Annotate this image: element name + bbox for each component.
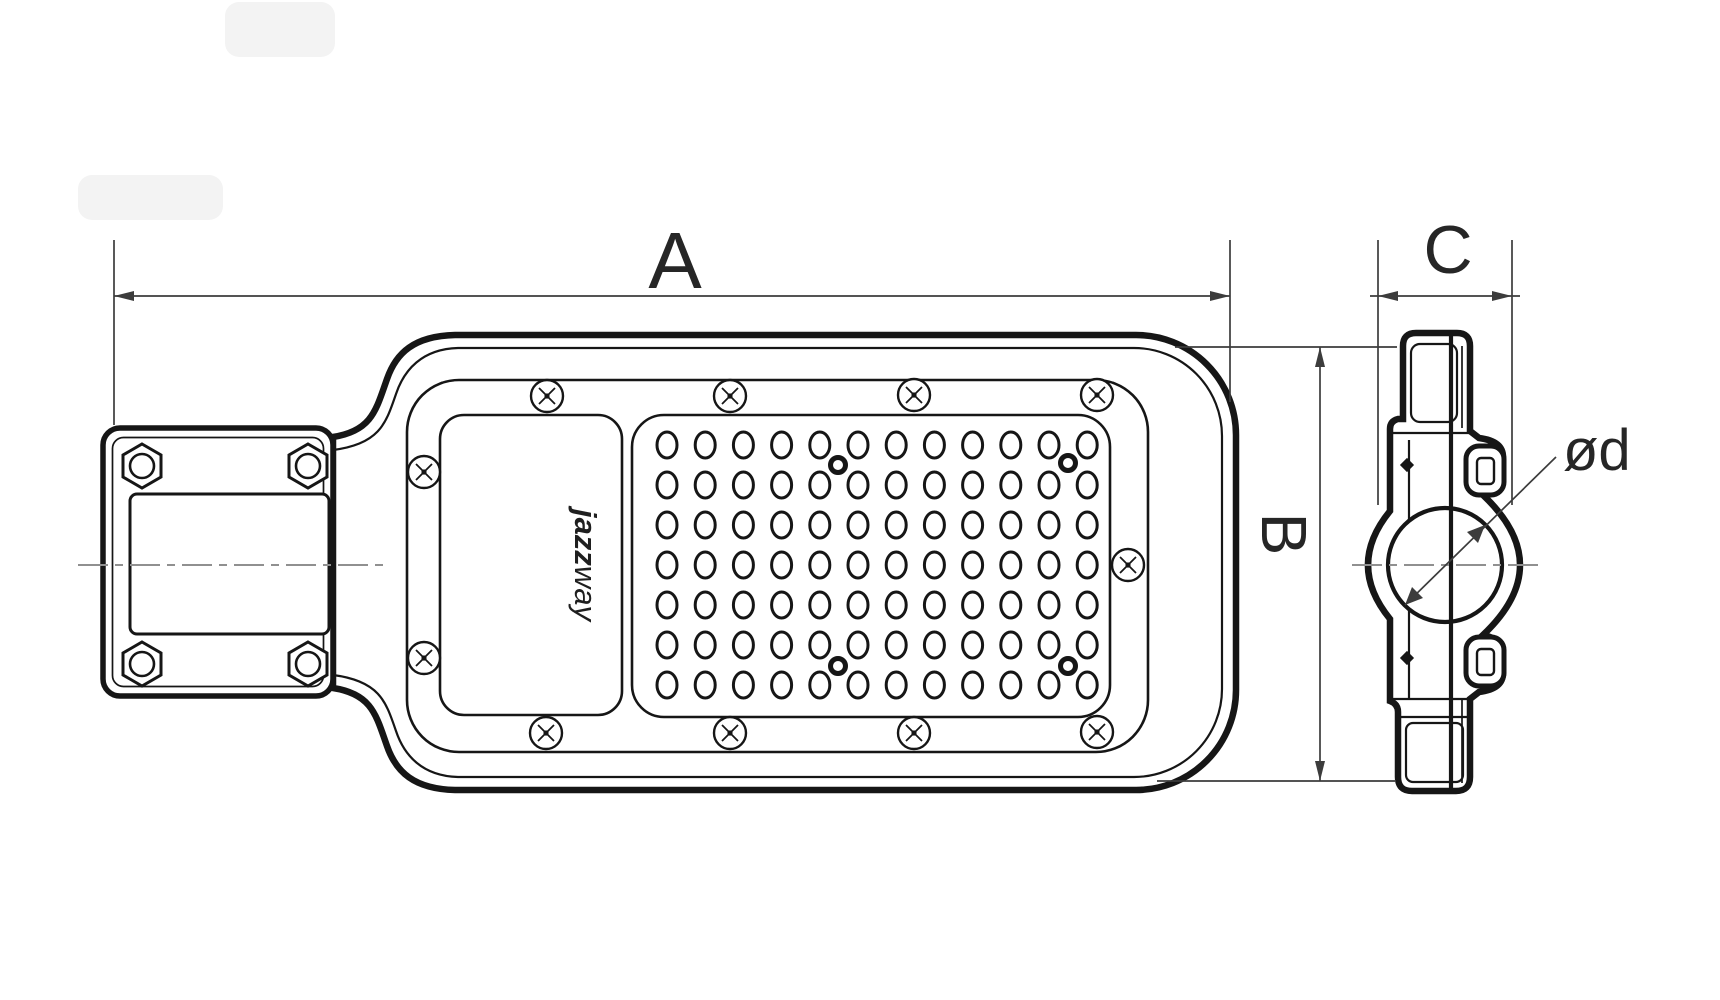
led-lens (1001, 592, 1021, 618)
led-lens (1001, 672, 1021, 698)
clamp-screw-bottom (1466, 637, 1504, 686)
led-lens (963, 432, 983, 458)
led-lens (657, 552, 677, 578)
led-lens (848, 632, 868, 658)
led-lens (772, 632, 792, 658)
led-lens (924, 632, 944, 658)
led-lens (1039, 432, 1059, 458)
hex-bolt-hole (130, 652, 154, 676)
led-lens (733, 432, 753, 458)
screw-center (421, 469, 426, 474)
led-lens (695, 512, 715, 538)
led-lens (733, 592, 753, 618)
led-lens (1077, 472, 1097, 498)
screw-center (727, 730, 732, 735)
led-lens (1001, 552, 1021, 578)
led-lens (1039, 592, 1059, 618)
led-lens (1001, 432, 1021, 458)
led-lens (695, 432, 715, 458)
led-lens (924, 472, 944, 498)
led-lens (772, 472, 792, 498)
led-lens (772, 512, 792, 538)
hex-bolt-hole (130, 454, 154, 478)
led-lens (886, 672, 906, 698)
screw-center (544, 393, 549, 398)
led-lens (1077, 552, 1097, 578)
main-view: jazzway (78, 335, 1236, 790)
led-lens (657, 672, 677, 698)
arrowhead-left (1378, 291, 1398, 301)
screw-center (543, 730, 548, 735)
screw-center (727, 393, 732, 398)
screw-center (1094, 729, 1099, 734)
led-lens (695, 552, 715, 578)
led-lens (810, 592, 830, 618)
led-lens (772, 672, 792, 698)
screw-center (911, 392, 916, 397)
led-lens (924, 592, 944, 618)
led-lens (963, 472, 983, 498)
arrowhead-right (1210, 291, 1230, 301)
hex-bolt-hole (296, 652, 320, 676)
clamp-screw-top (1466, 446, 1504, 495)
arrowhead-left (114, 291, 134, 301)
led-lens (886, 512, 906, 538)
led-lens (848, 592, 868, 618)
led-lens (848, 512, 868, 538)
led-lens (733, 472, 753, 498)
led-lens (1039, 552, 1059, 578)
led-lens (886, 632, 906, 658)
brand-logo: jazzway (568, 505, 603, 623)
led-lens (695, 592, 715, 618)
led-lens (963, 592, 983, 618)
arrowhead-right (1492, 291, 1512, 301)
led-lens (733, 672, 753, 698)
dim-b-label: B (1248, 513, 1320, 556)
led-lens (1039, 512, 1059, 538)
led-lens (657, 632, 677, 658)
led-post (831, 659, 846, 674)
led-lens (886, 472, 906, 498)
led-lens (733, 552, 753, 578)
led-lens (1001, 632, 1021, 658)
led-lens (772, 592, 792, 618)
led-lens (810, 432, 830, 458)
led-lens (848, 672, 868, 698)
led-lens (924, 552, 944, 578)
arrowhead-up (1315, 347, 1325, 367)
led-lens (1001, 512, 1021, 538)
led-lens (1077, 512, 1097, 538)
led-post (1061, 659, 1076, 674)
led-lens (963, 552, 983, 578)
side-view (1352, 333, 1542, 791)
led-lens (810, 552, 830, 578)
led-post (831, 458, 846, 473)
dim-a-label: A (648, 216, 702, 305)
led-lens (1077, 432, 1097, 458)
led-lens (963, 672, 983, 698)
led-lens (1039, 672, 1059, 698)
screw-center (911, 730, 916, 735)
screw-center (421, 655, 426, 660)
led-lens (924, 512, 944, 538)
led-lens (810, 632, 830, 658)
led-lens (695, 472, 715, 498)
led-lens (848, 472, 868, 498)
led-lens (733, 512, 753, 538)
led-lens (657, 472, 677, 498)
led-lens (810, 472, 830, 498)
led-lens (1077, 592, 1097, 618)
dim-c-label: C (1423, 212, 1472, 288)
led-lens (772, 432, 792, 458)
drawing-canvas: jazzway (0, 0, 1720, 1000)
led-lens (886, 552, 906, 578)
led-lens (886, 592, 906, 618)
led-lens (963, 632, 983, 658)
screw-center (1094, 392, 1099, 397)
led-lens (848, 432, 868, 458)
led-lens (657, 432, 677, 458)
led-lens (924, 672, 944, 698)
hex-bolt-hole (296, 454, 320, 478)
screw-center (1125, 562, 1130, 567)
led-lens (657, 512, 677, 538)
led-lens (657, 592, 677, 618)
led-lens (772, 552, 792, 578)
led-lens (924, 432, 944, 458)
arrowhead-down (1315, 761, 1325, 781)
scan-artifact (78, 175, 223, 220)
led-lens (1039, 472, 1059, 498)
led-lens (1039, 632, 1059, 658)
led-lens (963, 512, 983, 538)
led-lens (1001, 472, 1021, 498)
led-lens (810, 672, 830, 698)
led-lens (886, 432, 906, 458)
led-post (1061, 456, 1076, 471)
led-lens (695, 632, 715, 658)
street-light-technical-drawing: jazzway (0, 0, 1720, 1000)
led-lens (733, 632, 753, 658)
led-lens (848, 552, 868, 578)
led-lens (1077, 632, 1097, 658)
dim-d-label: ød (1563, 418, 1631, 483)
led-lens (695, 672, 715, 698)
scan-artifact (225, 2, 335, 57)
led-lens (810, 512, 830, 538)
led-lens (1077, 672, 1097, 698)
